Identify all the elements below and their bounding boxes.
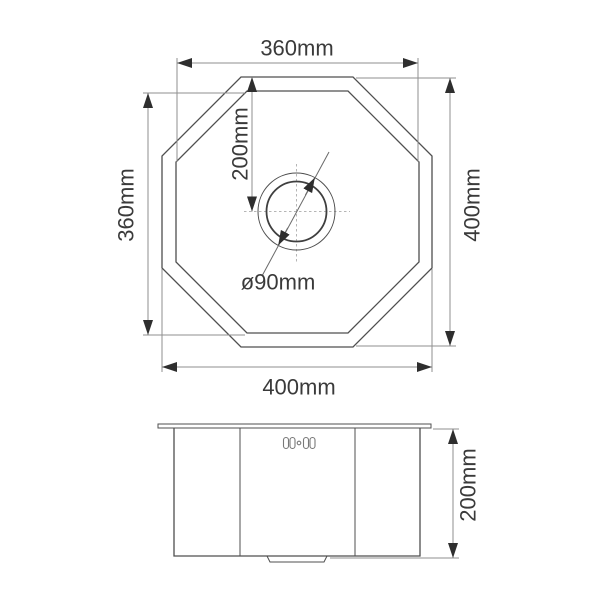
dimension-left-height: 360mm <box>114 93 246 335</box>
emblem-slot-icon <box>304 438 309 449</box>
technical-drawing: 360mm 360mm 400mm 400mm <box>0 0 600 600</box>
dim-label-depth: 200mm <box>456 448 481 521</box>
dim-label-bottom-width: 400mm <box>262 375 335 400</box>
drain-flange <box>267 556 327 562</box>
dimension-drain-diameter: ø90mm <box>241 152 329 295</box>
dim-label-drain-diameter: ø90mm <box>241 270 316 295</box>
side-view: 200mm <box>158 424 481 562</box>
bowl-body <box>174 428 420 556</box>
dim-label-left-height: 360mm <box>114 168 139 241</box>
overflow-emblem <box>284 438 316 449</box>
inner-octagon <box>176 91 419 333</box>
emblem-dot-icon <box>297 441 301 445</box>
emblem-slot-icon <box>290 438 295 449</box>
emblem-slot-icon <box>284 438 289 449</box>
dim-label-top-width: 360mm <box>260 36 333 61</box>
drawing-svg: 360mm 360mm 400mm 400mm <box>0 0 600 600</box>
diameter-leader-line <box>262 152 329 276</box>
dimension-top-width: 360mm <box>177 36 418 163</box>
dimension-depth: 200mm <box>330 429 481 558</box>
top-view: 360mm 360mm 400mm 400mm <box>114 36 485 400</box>
rim <box>158 424 431 428</box>
dim-label-right-height: 400mm <box>460 168 485 241</box>
emblem-slot-icon <box>310 438 315 449</box>
dim-label-drain-offset: 200mm <box>228 107 253 180</box>
